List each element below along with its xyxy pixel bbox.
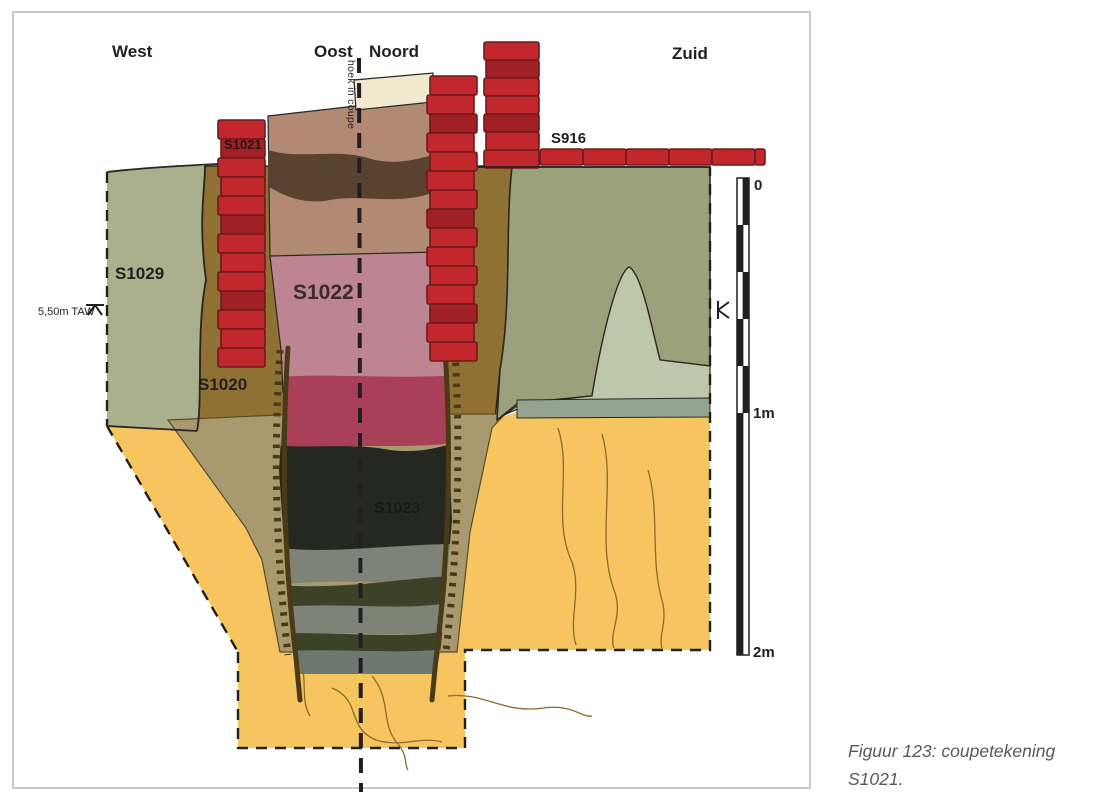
label-noord: Noord (369, 42, 419, 61)
shaft-lower-bands (270, 375, 460, 674)
corner-note: hoek in coupe (345, 60, 357, 129)
brick-course-s916 (540, 149, 765, 165)
label-s1023: S1023 (374, 500, 420, 517)
label-s1022: S1022 (293, 281, 354, 304)
figure-page: 0 1m 2m West Oost Noord Zuid hoek in cou… (0, 0, 1100, 809)
label-oost: Oost (314, 42, 353, 61)
layer-s1029 (107, 166, 206, 431)
scale-label-1m: 1m (753, 405, 775, 422)
label-zuid: Zuid (672, 44, 708, 63)
taw-level-label: 5,50m TAW (38, 306, 95, 318)
section-drawing: 0 1m 2m West Oost Noord Zuid hoek in cou… (0, 0, 1100, 809)
label-west: West (112, 42, 153, 61)
label-s1029: S1029 (115, 264, 164, 283)
caption-line1: Figuur 123: coupetekening (848, 741, 1055, 761)
brick-column-left (218, 120, 265, 367)
scale-label-0: 0 (754, 177, 762, 194)
layer-graygreen-band (517, 398, 710, 418)
label-s1020: S1020 (198, 375, 247, 394)
label-s1021: S1021 (224, 137, 262, 152)
brick-column-right (427, 76, 477, 361)
caption-line2: S1021. (848, 769, 903, 789)
brick-column-tall (484, 42, 539, 168)
figure-caption: Figuur 123: coupetekening S1021. (848, 741, 1055, 789)
label-s916: S916 (551, 130, 586, 147)
scale-label-2m: 2m (753, 644, 775, 661)
